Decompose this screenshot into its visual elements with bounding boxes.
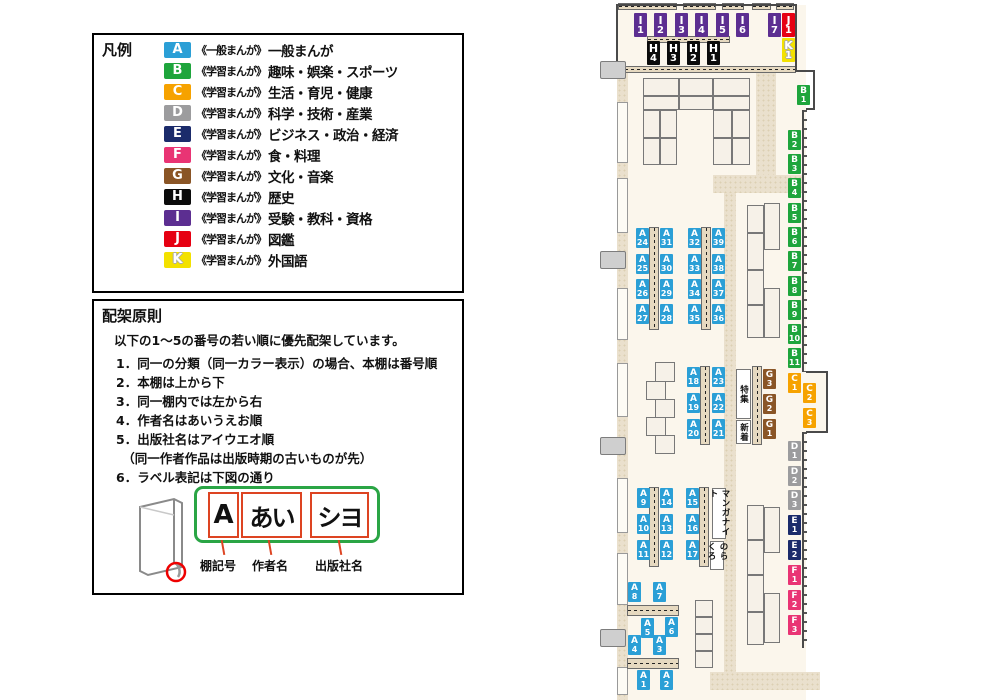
- wall-right-main-upper: [802, 110, 807, 372]
- shelf-label-I4: I4: [695, 13, 708, 37]
- shelf-label-G3: G3: [763, 369, 776, 389]
- label-publisher-box: シヨ: [310, 492, 369, 538]
- shelf-label-A16: A16: [686, 514, 699, 534]
- shelf-number: 2: [792, 141, 798, 149]
- wall-b1-right: [813, 70, 815, 110]
- shelf-number: 5: [719, 26, 726, 36]
- shelf-number: 3: [807, 419, 813, 427]
- shelf-label-A2: A2: [660, 670, 673, 690]
- label-shelf-code-box: A: [208, 492, 239, 538]
- wall-right-main-lower: [802, 432, 807, 648]
- legend-category: 歴史: [268, 187, 294, 207]
- legend-category: 受験・教科・資格: [268, 208, 372, 228]
- table: [747, 575, 764, 612]
- shelf-number: 1: [641, 681, 647, 689]
- shelf-label-I3: I3: [675, 13, 688, 37]
- shelf-label-I1: I1: [634, 13, 647, 37]
- shelf-label-C3: C3: [803, 408, 816, 428]
- legend-panel: 凡例 A《一般まんが》一般まんがB《学習まんが》趣味・娯楽・スポーツC《学習まん…: [92, 33, 464, 293]
- legend-row-I: I《学習まんが》受験・教科・資格: [164, 207, 398, 228]
- table: [643, 78, 679, 96]
- shelf-label-C1: C1: [788, 373, 801, 393]
- shelf-number: 9: [641, 499, 647, 507]
- legend-category: 生活・育児・健康: [268, 82, 372, 102]
- shelf-label-A39: A39: [712, 228, 725, 248]
- shelf-label-A14: A14: [660, 488, 673, 508]
- table: [643, 138, 660, 165]
- table: [713, 110, 732, 138]
- shelf-number: 1: [767, 430, 773, 438]
- shelf-label-B5: B5: [788, 203, 801, 223]
- shelf-label-H4: H4: [647, 41, 660, 65]
- shelf-number: 27: [637, 315, 648, 323]
- shelf-letter: K: [784, 40, 793, 51]
- shelf-number: 35: [689, 315, 700, 323]
- rule-2: 2．本棚は上から下: [116, 373, 437, 392]
- shelf-label-I2: I2: [654, 13, 667, 37]
- shelf-label-A36: A36: [712, 304, 725, 324]
- display-table: [655, 435, 675, 454]
- shelf-number: 1: [785, 26, 792, 36]
- shelf-label-G1: G1: [763, 419, 776, 439]
- shelf-letter: I: [638, 15, 642, 26]
- shelf-label-B1: B1: [797, 85, 810, 105]
- shelf-number: 1: [801, 96, 807, 104]
- shelf-label-A12: A12: [660, 540, 673, 560]
- shelf-label-H3: H3: [667, 41, 680, 65]
- shelf-label-A6: A6: [665, 617, 678, 637]
- display-table: [646, 381, 666, 400]
- shelf-number: 3: [670, 54, 677, 64]
- shelf-number: 17: [687, 551, 698, 559]
- shelf-number: 3: [792, 626, 798, 634]
- shelf-number: 2: [792, 551, 798, 559]
- wall-band-upper-right: [756, 73, 776, 177]
- principles-intro: 以下の1～5の番号の若い順に優先配架しています。: [114, 330, 405, 349]
- legend-chip-A: A: [164, 42, 191, 58]
- shelf-label-B9: B9: [788, 300, 801, 320]
- shelf-label-A21: A21: [712, 419, 725, 439]
- shelf-number: 32: [689, 239, 700, 247]
- shelf-letter: H: [649, 43, 658, 54]
- shelf-number: 9: [792, 311, 798, 319]
- window: [617, 288, 628, 340]
- legend-row-G: G《学習まんが》文化・音楽: [164, 165, 398, 186]
- shelf-number: 7: [771, 26, 778, 36]
- shelf-number: 36: [713, 315, 724, 323]
- door: [600, 61, 626, 79]
- legend-row-F: F《学習まんが》食・料理: [164, 144, 398, 165]
- shelf-label-A18: A18: [687, 367, 700, 387]
- shelf-number: 33: [689, 265, 700, 273]
- shelf-label-B4: B4: [788, 178, 801, 198]
- shelf-label-A33: A33: [688, 254, 701, 274]
- table: [660, 110, 677, 138]
- shelf-label-B6: B6: [788, 227, 801, 247]
- bookshelf-strip: [700, 366, 710, 445]
- table: [643, 110, 660, 138]
- shelf-number: 22: [713, 404, 724, 412]
- shelf-number: 4: [792, 189, 798, 197]
- shelf-number: 25: [637, 265, 648, 273]
- shelf-label-A17: A17: [686, 540, 699, 560]
- shelf-letter: H: [689, 43, 698, 54]
- legend-chip-G: G: [164, 168, 191, 184]
- wall-band-bottom: [710, 672, 820, 690]
- shelf-number: 37: [713, 290, 724, 298]
- shelf-label-A31: A31: [660, 228, 673, 248]
- legend-scope: 《学習まんが》: [196, 252, 266, 268]
- table: [732, 138, 750, 165]
- shelf-number: 8: [632, 593, 638, 601]
- shelf-label-I5: I5: [716, 13, 729, 37]
- legend-category: 一般まんが: [268, 40, 333, 60]
- legend-scope: 《学習まんが》: [196, 231, 266, 247]
- table: [764, 203, 780, 250]
- rule-3: 3．同一棚内では左から右: [116, 392, 437, 411]
- shelf-label-A4: A4: [628, 635, 641, 655]
- table: [732, 110, 750, 138]
- shelf-label-J1: J1: [782, 13, 795, 37]
- book-icon: [130, 493, 194, 585]
- shelf-number: 2: [664, 681, 670, 689]
- legend-category: 外国語: [268, 250, 307, 270]
- shelf-number: 2: [792, 601, 798, 609]
- shelf-label-A10: A10: [637, 514, 650, 534]
- shelf-number: 3: [792, 165, 798, 173]
- shelf-number: 16: [687, 525, 698, 533]
- wall-alcove-right: [826, 371, 828, 433]
- legend-scope: 《一般まんが》: [196, 42, 266, 58]
- bookshelf-strip: [627, 605, 679, 616]
- shelf-label-A38: A38: [712, 254, 725, 274]
- shelf-label-K1: K1: [782, 38, 795, 62]
- shelf-number: 24: [637, 239, 648, 247]
- shelf-label-A29: A29: [660, 279, 673, 299]
- table: [764, 593, 780, 643]
- shelf-number: 1: [792, 384, 798, 392]
- shelf-number: 38: [713, 265, 724, 273]
- shelf-label-A11: A11: [637, 540, 650, 560]
- shelf-label-A8: A8: [628, 582, 641, 602]
- door: [600, 251, 626, 269]
- shelf-number: 2: [767, 405, 773, 413]
- shelf-number: 3: [767, 380, 773, 388]
- shelf-letter: I: [772, 15, 776, 26]
- shelf-number: 23: [713, 378, 724, 386]
- shelf-number: 28: [661, 315, 672, 323]
- shelf-label-H1: H1: [707, 41, 720, 65]
- shelf-label-B2: B2: [788, 130, 801, 150]
- shelf-number: 7: [657, 593, 663, 601]
- bookshelf-strip: [701, 227, 711, 330]
- shelf-number: 19: [688, 404, 699, 412]
- legend-chip-K: K: [164, 252, 191, 268]
- shelf-label-A27: A27: [636, 304, 649, 324]
- shelf-number: 11: [638, 551, 649, 559]
- shelf-number: 4: [650, 54, 657, 64]
- shelf-label-A35: A35: [688, 304, 701, 324]
- table: [747, 612, 764, 645]
- legend-chip-E: E: [164, 126, 191, 142]
- principles-title: 配架原則: [102, 305, 162, 326]
- table: [643, 96, 679, 110]
- shelf-number: 3: [657, 646, 663, 654]
- table: [713, 96, 750, 110]
- table: [764, 288, 780, 338]
- wall-step-back: [806, 108, 815, 110]
- shelf-number: 10: [789, 335, 800, 343]
- bookshelf-strip: [649, 227, 659, 330]
- shelf-number: 21: [713, 430, 724, 438]
- rules-list: 1．同一の分類（同一カラー表示）の場合、本棚は番号順2．本棚は上から下3．同一棚…: [116, 354, 437, 487]
- shelf-letter: I: [740, 15, 744, 26]
- legend-chip-B: B: [164, 63, 191, 79]
- shelf-number: 1: [792, 452, 798, 460]
- legend-row-B: B《学習まんが》趣味・娯楽・スポーツ: [164, 60, 398, 81]
- legend-category: ビジネス・政治・経済: [268, 124, 398, 144]
- rule-6: 6．ラベル表記は下図の通り: [116, 468, 437, 487]
- display-table: [695, 634, 713, 651]
- shelf-label-F1: F1: [788, 565, 801, 585]
- door: [600, 437, 626, 455]
- window: [617, 478, 628, 533]
- bookshelf-strip: [649, 487, 659, 567]
- shelf-number: 3: [678, 26, 685, 36]
- shelf-number: 1: [785, 51, 792, 61]
- legend-chip-I: I: [164, 210, 191, 226]
- area-label-のらくろ: のらくろ: [710, 541, 724, 570]
- table: [747, 233, 764, 270]
- legend-category: 図鑑: [268, 229, 294, 249]
- legend-scope: 《学習まんが》: [196, 63, 266, 79]
- shelf-number: 5: [792, 214, 798, 222]
- shelf-label-A30: A30: [660, 254, 673, 274]
- display-table: [655, 362, 675, 382]
- window: [617, 102, 628, 163]
- door: [600, 629, 626, 647]
- shelf-number: 26: [637, 290, 648, 298]
- table: [747, 540, 764, 575]
- principles-panel: 配架原則 以下の1～5の番号の若い順に優先配架しています。 1．同一の分類（同一…: [92, 299, 464, 595]
- legend-scope: 《学習まんが》: [196, 168, 266, 184]
- window: [617, 178, 628, 233]
- shelf-number: 7: [792, 262, 798, 270]
- shelf-number: 4: [698, 26, 705, 36]
- shelf-label-A1: A1: [637, 670, 650, 690]
- shelf-label-I7: I7: [768, 13, 781, 37]
- shelf-letter: I: [658, 15, 662, 26]
- shelf-number: 20: [688, 430, 699, 438]
- shelf-number: 29: [661, 290, 672, 298]
- shelf-label-A26: A26: [636, 279, 649, 299]
- shelf-label-B3: B3: [788, 154, 801, 174]
- shelf-label-E2: E2: [788, 540, 801, 560]
- shelf-label-B8: B8: [788, 276, 801, 296]
- shelf-label-A20: A20: [687, 419, 700, 439]
- shelf-letter: H: [669, 43, 678, 54]
- legend-scope: 《学習まんが》: [196, 189, 266, 205]
- area-label-新着: 新着: [736, 420, 751, 444]
- shelf-label-D1: D1: [788, 441, 801, 461]
- wall-right-top: [795, 4, 797, 72]
- table: [713, 78, 750, 96]
- legend-category: 文化・音楽: [268, 166, 333, 186]
- display-table: [646, 417, 666, 436]
- shelf-label-A7: A7: [653, 582, 666, 602]
- shelf-number: 1: [792, 576, 798, 584]
- legend-row-C: C《学習まんが》生活・育児・健康: [164, 81, 398, 102]
- legend-row-J: J《学習まんが》図鑑: [164, 228, 398, 249]
- shelf-number: 2: [792, 477, 798, 485]
- legend-row-D: D《学習まんが》科学・技術・産業: [164, 102, 398, 123]
- shelf-label-H2: H2: [687, 41, 700, 65]
- shelf-number: 34: [689, 290, 700, 298]
- shelf-label-A32: A32: [688, 228, 701, 248]
- shelf-label-D3: D3: [788, 490, 801, 510]
- shelf-number: 39: [713, 239, 724, 247]
- legend-rows: A《一般まんが》一般まんがB《学習まんが》趣味・娯楽・スポーツC《学習まんが》生…: [164, 39, 398, 270]
- shelf-label-F3: F3: [788, 615, 801, 635]
- legend-chip-C: C: [164, 84, 191, 100]
- floor-map-page: 凡例 A《一般まんが》一般まんがB《学習まんが》趣味・娯楽・スポーツC《学習まん…: [0, 0, 1000, 700]
- shelf-label-A13: A13: [660, 514, 673, 534]
- table: [764, 507, 780, 553]
- caption-publisher: 出版社名: [315, 557, 363, 574]
- legend-scope: 《学習まんが》: [196, 210, 266, 226]
- shelf-number: 11: [789, 359, 800, 367]
- shelf-letter: J: [786, 15, 790, 26]
- legend-chip-J: J: [164, 231, 191, 247]
- legend-scope: 《学習まんが》: [196, 126, 266, 142]
- shelf-label-A19: A19: [687, 393, 700, 413]
- shelf-letter: I: [679, 15, 683, 26]
- shelf-label-F2: F2: [788, 590, 801, 610]
- area-label-特集: 特集: [736, 369, 751, 419]
- shelf-label-A37: A37: [712, 279, 725, 299]
- shelf-label-A9: A9: [637, 488, 650, 508]
- shelf-number: 6: [669, 628, 675, 636]
- window: [617, 667, 628, 695]
- display-table: [695, 651, 713, 668]
- rule-4: 4．作者名はあいうえお順: [116, 411, 437, 430]
- shelf-number: 5: [645, 629, 651, 637]
- legend-category: 食・料理: [268, 145, 320, 165]
- legend-row-E: E《学習まんが》ビジネス・政治・経済: [164, 123, 398, 144]
- shelf-number: 14: [661, 499, 672, 507]
- table: [747, 270, 764, 305]
- wall-step: [795, 70, 815, 72]
- shelf-number: 6: [739, 26, 746, 36]
- legend-chip-D: D: [164, 105, 191, 121]
- label-author-box: あい: [241, 492, 302, 538]
- area-label-マンガナイト: マンガナイト: [712, 488, 726, 539]
- shelf-number: 15: [687, 499, 698, 507]
- bookshelf-strip: [752, 366, 762, 445]
- rule-5: 5．出版社名はアイウエオ順 （同一作者作品は出版時期の古いものが先）: [116, 430, 437, 468]
- shelf-number: 8: [792, 287, 798, 295]
- wall-top: [616, 4, 797, 6]
- shelf-number: 6: [792, 238, 798, 246]
- table: [713, 138, 732, 165]
- shelf-number: 31: [661, 239, 672, 247]
- display-table: [695, 600, 713, 617]
- shelf-number: 18: [688, 378, 699, 386]
- wall-band-mid-vertical: [724, 193, 736, 675]
- legend-chip-H: H: [164, 189, 191, 205]
- table: [679, 78, 713, 96]
- caption-shelf-code: 棚記号: [200, 557, 236, 574]
- shelf-label-G2: G2: [763, 394, 776, 414]
- shelf-number: 13: [661, 525, 672, 533]
- window: [617, 553, 628, 605]
- legend-title: 凡例: [102, 39, 132, 60]
- legend-category: 趣味・娯楽・スポーツ: [268, 61, 398, 81]
- display-table: [655, 399, 675, 418]
- table: [747, 205, 764, 233]
- shelf-number: 2: [657, 26, 664, 36]
- shelf-label-D2: D2: [788, 466, 801, 486]
- shelf-number: 3: [792, 501, 798, 509]
- shelf-label-A25: A25: [636, 254, 649, 274]
- shelf-number: 4: [632, 646, 638, 654]
- table: [660, 138, 677, 165]
- legend-row-K: K《学習まんが》外国語: [164, 249, 398, 270]
- legend-scope: 《学習まんが》: [196, 105, 266, 121]
- shelf-letter: H: [709, 43, 718, 54]
- window: [617, 363, 628, 417]
- shelf-number: 2: [807, 394, 813, 402]
- table: [747, 305, 764, 338]
- shelf-number: 12: [661, 551, 672, 559]
- legend-scope: 《学習まんが》: [196, 147, 266, 163]
- shelf-label-A24: A24: [636, 228, 649, 248]
- shelf-number: 10: [638, 525, 649, 533]
- legend-scope: 《学習まんが》: [196, 84, 266, 100]
- shelf-label-A23: A23: [712, 367, 725, 387]
- bookshelf-strip: [618, 66, 796, 73]
- legend-row-H: H《学習まんが》歴史: [164, 186, 398, 207]
- wall-alcove-top: [806, 371, 828, 373]
- table: [747, 505, 764, 540]
- wall-alcove-bottom: [806, 431, 828, 433]
- shelf-label-A22: A22: [712, 393, 725, 413]
- shelf-number: 2: [690, 54, 697, 64]
- shelf-label-C2: C2: [803, 383, 816, 403]
- shelf-label-A3: A3: [653, 635, 666, 655]
- shelf-label-E1: E1: [788, 515, 801, 535]
- caption-author: 作者名: [252, 557, 288, 574]
- shelf-label-B7: B7: [788, 251, 801, 271]
- shelf-label-A28: A28: [660, 304, 673, 324]
- legend-row-A: A《一般まんが》一般まんが: [164, 39, 398, 60]
- shelf-label-B11: B11: [788, 348, 801, 368]
- bookshelf-strip: [627, 658, 679, 669]
- legend-category: 科学・技術・産業: [268, 103, 372, 123]
- shelf-letter: I: [720, 15, 724, 26]
- table: [679, 96, 713, 110]
- shelf-number: 1: [637, 26, 644, 36]
- shelf-letter: I: [699, 15, 703, 26]
- shelf-label-A34: A34: [688, 279, 701, 299]
- shelf-number: 30: [661, 265, 672, 273]
- display-table: [695, 617, 713, 634]
- legend-chip-F: F: [164, 147, 191, 163]
- shelf-number: 1: [792, 526, 798, 534]
- shelf-number: 1: [710, 54, 717, 64]
- rule-1: 1．同一の分類（同一カラー表示）の場合、本棚は番号順: [116, 354, 437, 373]
- shelf-label-B10: B10: [788, 324, 801, 344]
